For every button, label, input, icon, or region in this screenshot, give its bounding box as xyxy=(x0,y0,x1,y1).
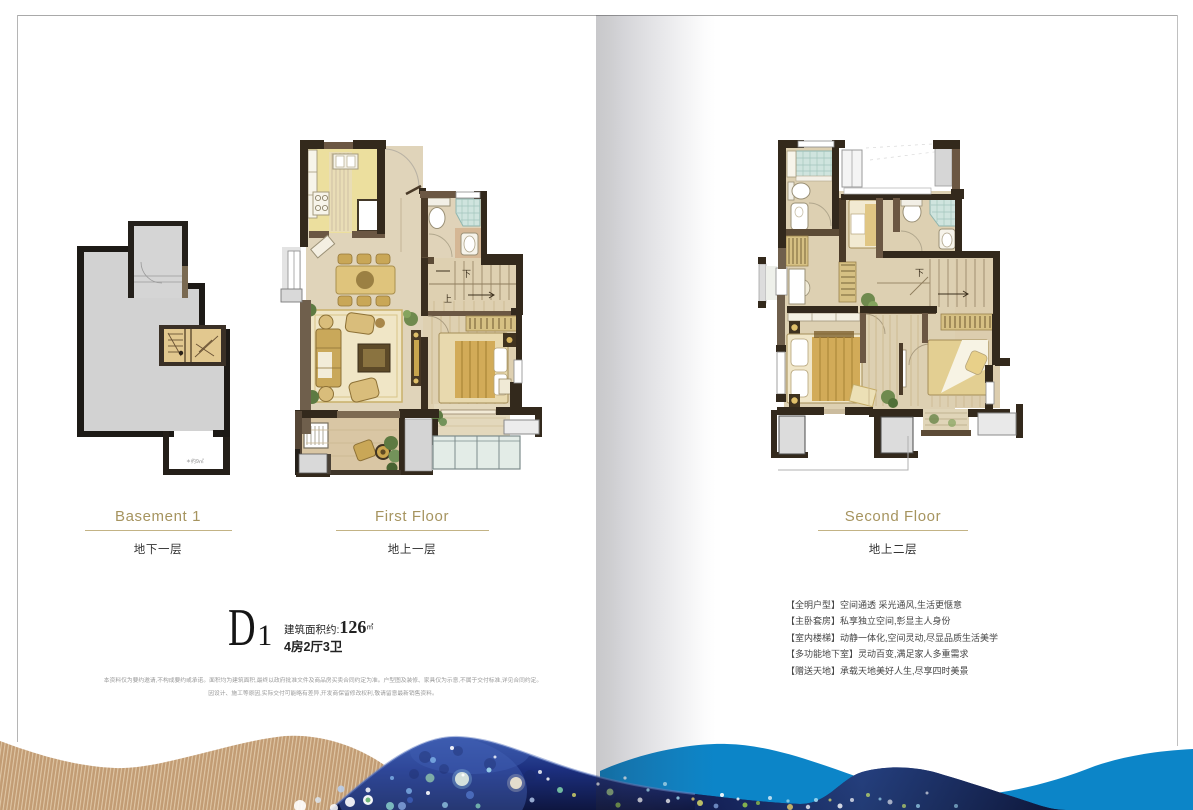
svg-text:下: 下 xyxy=(915,268,924,278)
svg-text:＊约9㎡: ＊约9㎡ xyxy=(186,458,204,465)
svg-text:下: 下 xyxy=(462,269,471,279)
